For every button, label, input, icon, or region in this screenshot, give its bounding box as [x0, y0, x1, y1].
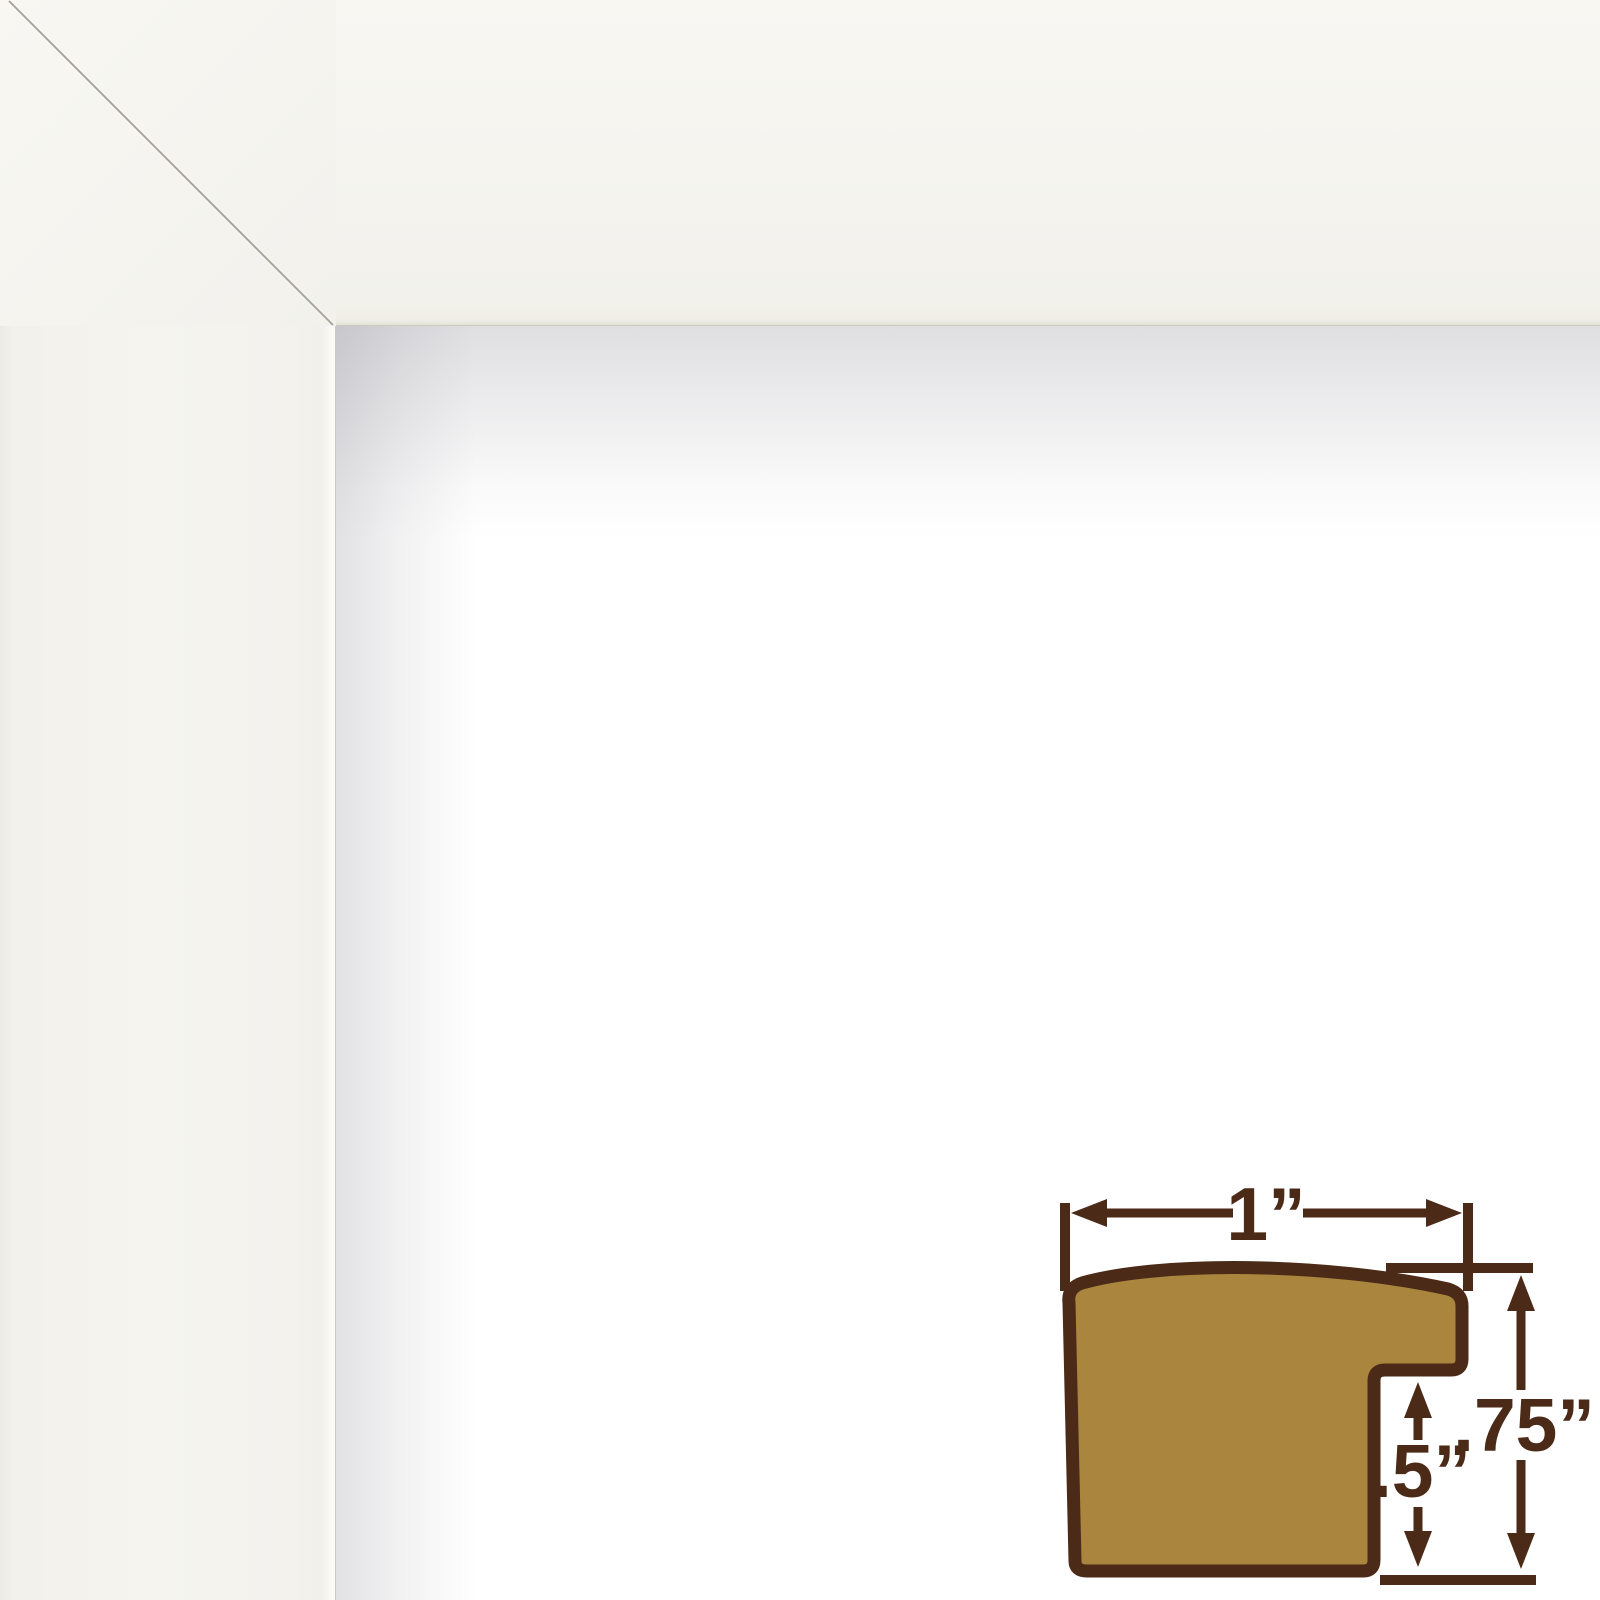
picture-area-top-shadow [336, 326, 1600, 541]
frame-miter-corner [0, 0, 336, 326]
height-dimension-label: .75” [1453, 1383, 1595, 1467]
height-dimension: .75” [1453, 1275, 1595, 1569]
arrow-left-icon [1071, 1199, 1107, 1227]
arrow-right-icon [1426, 1199, 1462, 1227]
rabbet-dimension-label: .5” [1371, 1429, 1471, 1513]
arrow-up-icon [1507, 1275, 1535, 1311]
frame-product-image: 1” .75” .5” [0, 0, 1600, 1600]
arrow-down-icon [1404, 1531, 1432, 1567]
profile-dimension-diagram: 1” .75” .5” [1000, 1140, 1600, 1600]
moulding-profile-shape [1069, 1268, 1462, 1571]
picture-area-left-shadow [336, 326, 476, 1600]
width-dimension-label: 1” [1226, 1172, 1305, 1256]
arrow-down-icon [1507, 1533, 1535, 1569]
frame-left-rail [0, 326, 336, 1600]
frame-top-rail [336, 0, 1600, 326]
arrow-up-icon [1404, 1382, 1432, 1418]
